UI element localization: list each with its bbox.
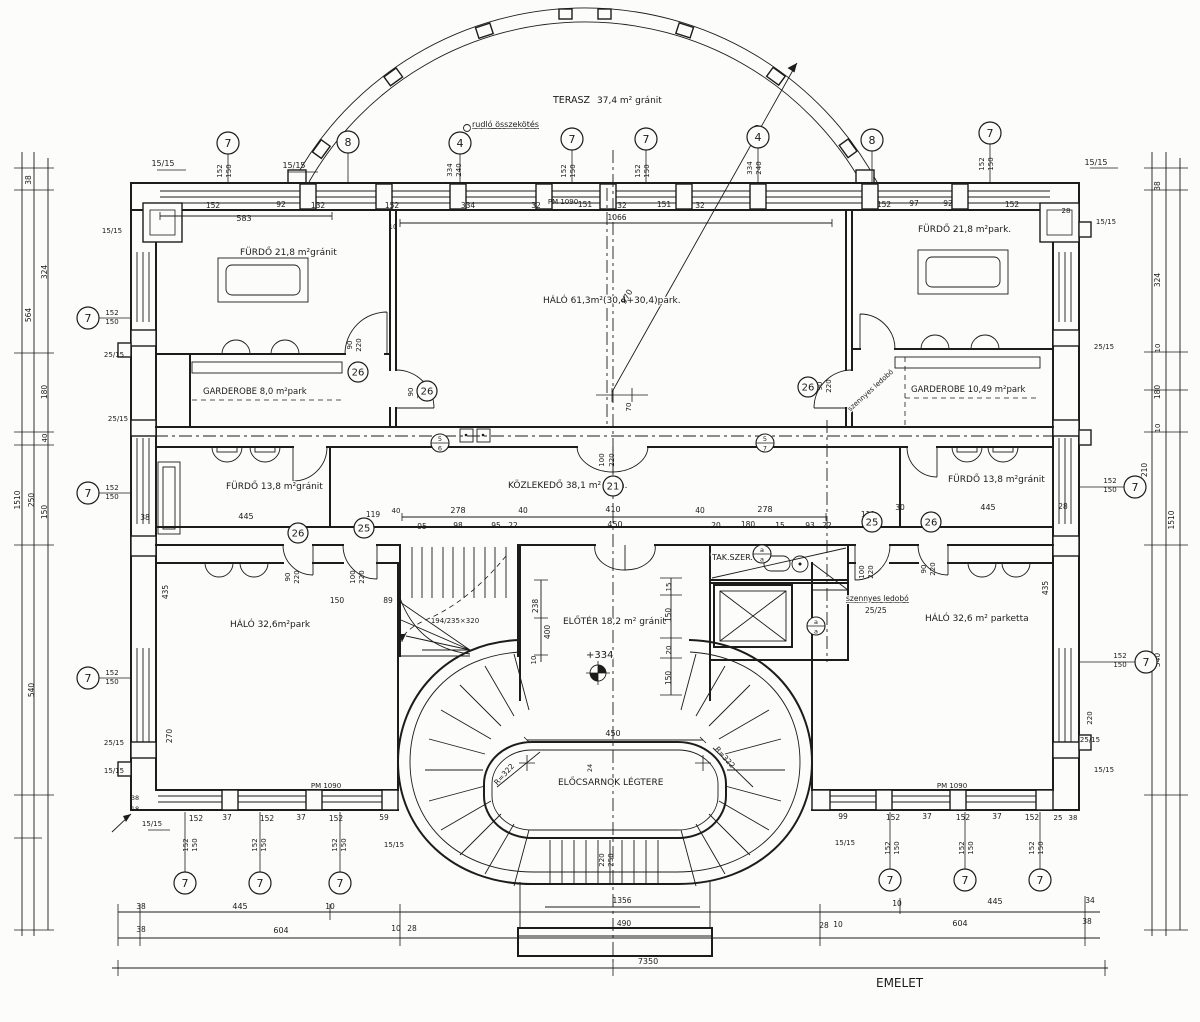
dimension-label: 40	[392, 507, 401, 515]
ref-bubble: 26	[921, 512, 941, 532]
grid-bubble-number: 7	[643, 133, 650, 146]
room-label: HÁLÓ 61,3m²(30,4+30,4)park.	[543, 294, 681, 306]
room-labels-layer: TERASZ37,4 m² gránitFÜRDŐ 21,8 m²gránitF…	[203, 95, 1045, 990]
dimension-label: 15	[665, 583, 673, 592]
dimension-label: 238	[531, 599, 540, 614]
dimension-label: 20	[711, 521, 721, 530]
dimension-label: 25/15	[108, 415, 128, 423]
dimension-label: 34	[1085, 896, 1095, 905]
dimension-label: 152	[206, 201, 221, 210]
dimension-label: 92	[276, 200, 286, 209]
dimension-label: 152	[877, 200, 892, 209]
dimension-label: 220	[293, 570, 301, 583]
room-label: EMELET	[876, 976, 924, 990]
dimension-label: 90	[346, 341, 354, 350]
dimension-label: 604	[273, 926, 288, 935]
room-label: rudló összekötés	[472, 119, 539, 129]
dimension-label: 38	[140, 513, 150, 522]
split-bubble: aa	[807, 617, 825, 636]
dimension-label: 38	[1069, 814, 1078, 822]
dimension-label: 220	[358, 570, 366, 583]
dimension-label: 400	[543, 625, 552, 640]
room-label: TAK.SZER.	[711, 553, 753, 562]
dimension-label: 37	[922, 812, 932, 821]
grid-bubble-number: 7	[887, 874, 894, 887]
grid-bubble-number: 7	[225, 137, 232, 150]
ref-bubble: 26	[348, 362, 368, 382]
railing-post	[559, 9, 572, 19]
dimension-label: 150	[191, 838, 199, 851]
dimension-label: 24	[586, 764, 594, 772]
split-bubble: 56	[431, 434, 449, 453]
dimension-label: 445	[232, 902, 247, 911]
grid-bubble: 7	[77, 307, 131, 329]
fixture-arcs	[968, 563, 1030, 577]
dimension-label: 152	[1025, 813, 1040, 822]
grid-bubble-number: 7	[337, 877, 344, 890]
ref-bubble-number: 25	[358, 524, 371, 535]
dimension-label: 25/15	[104, 351, 124, 359]
room-label: szennyes ledobó	[846, 594, 909, 603]
dimension-label: 95	[417, 522, 427, 531]
dimension-label: 28	[407, 924, 417, 933]
dimension-label: 15/15	[835, 839, 855, 847]
dimension-label: 97	[909, 199, 919, 208]
dimension-label: 10	[1154, 424, 1162, 433]
dimension-label: 270	[165, 729, 174, 744]
note-marker	[464, 125, 471, 132]
dimension-label: 152	[105, 309, 118, 317]
dimension-label: 150	[330, 596, 345, 605]
grid-bubble-number: 8	[869, 134, 876, 147]
dimension-label: 151	[578, 200, 593, 209]
grid-bubble-number: 7	[85, 487, 92, 500]
dimension-label: 152	[182, 838, 190, 851]
floor-plan-drawing: EMELET	[0, 0, 1200, 1022]
dimension-label: 15/15	[151, 159, 174, 168]
dimension-label: 150	[105, 318, 118, 326]
dimension-label: 410	[605, 505, 620, 514]
dimension-label: 180	[741, 520, 756, 529]
dimension-label: 150	[260, 838, 268, 851]
dimension-label: 220	[355, 338, 363, 351]
upper-stair	[399, 547, 518, 656]
dimension-label: 37	[992, 812, 1002, 821]
dimension-label: 32	[695, 201, 705, 210]
wardrobe	[895, 357, 1040, 368]
dimension-label: 38	[1153, 181, 1162, 191]
dimension-label: 18	[131, 805, 139, 813]
grid-bubble-number: 7	[257, 877, 264, 890]
dimension-label: 1510	[1167, 510, 1176, 529]
dimension-label: 152	[105, 484, 118, 492]
dimension-label: 92	[943, 199, 953, 208]
diagonal-970	[612, 63, 797, 392]
dimension-label: 25/15	[1094, 343, 1114, 351]
dimension-label: 450	[607, 520, 622, 529]
fixture-arcs	[205, 563, 268, 577]
dimension-label: 15/15	[1084, 158, 1107, 167]
room-label: +334	[586, 650, 613, 661]
dimension-label: 90	[920, 565, 928, 574]
dimension-label: 22	[822, 521, 832, 530]
dimension-label: 32	[531, 201, 541, 210]
dimension-label: 250	[27, 493, 36, 508]
dimension-label: 152	[956, 813, 971, 822]
grid-bubble: 7	[249, 812, 271, 894]
dimension-label: PM 1090	[937, 782, 967, 790]
dimension-label: 150	[664, 608, 673, 623]
dimension-label: 604	[952, 919, 967, 928]
dimension-label: 278	[450, 506, 465, 515]
dimension-label: 100	[858, 565, 866, 578]
laundry-chute	[812, 563, 848, 590]
dimension-label: 32	[617, 201, 627, 210]
ref-bubble-number: 26	[352, 368, 365, 379]
room-label: FÜRDŐ 21,8 m²gránit	[240, 247, 337, 258]
dimension-label: 15/15	[104, 767, 124, 775]
railing-post	[839, 139, 857, 158]
dimension-label: 10	[1154, 344, 1162, 353]
railing-post	[312, 140, 330, 159]
dimension-label: 220	[929, 562, 937, 575]
room-label: GARDEROBE 8,0 m²park	[203, 387, 307, 397]
dimension-label: 38	[1082, 917, 1092, 926]
grid-bubble: 7	[77, 667, 131, 689]
corner-column	[143, 203, 182, 242]
room-label: FÜRDŐ 13,8 m²gránit	[948, 474, 1045, 485]
dimension-label: 152	[884, 841, 892, 854]
dimension-label: 152	[105, 669, 118, 677]
arch-foot	[856, 170, 874, 183]
dimension-label: 10	[325, 902, 335, 911]
grid-bubble-number: 4	[457, 137, 464, 150]
dimension-label: 25/15	[104, 739, 124, 747]
dimension-label: 240	[455, 163, 463, 176]
dimension-label: 40	[41, 434, 49, 443]
split-bubble-bottom: a	[814, 628, 818, 636]
split-bubble-top: a	[814, 618, 818, 626]
room-label: ELŐCSARNOK LÉGTERE	[558, 776, 664, 788]
dimension-label: 152	[329, 814, 344, 823]
dimension-label: 220	[825, 379, 833, 392]
dimension-label: 152	[1103, 477, 1116, 485]
dimension-label: 150	[1037, 841, 1045, 854]
dimension-label: 152	[216, 164, 224, 177]
wall-piers	[118, 184, 1091, 810]
elevator-x	[720, 591, 786, 641]
ref-bubble-number: 26	[421, 387, 434, 398]
split-bubble-bottom: 6	[438, 445, 442, 453]
dimension-label: 100	[349, 570, 357, 583]
dimension-label: 90	[284, 573, 292, 582]
ref-bubble-number: 26	[292, 529, 305, 540]
dimension-label: 10	[892, 899, 902, 908]
floor-plan-sheet: EMELET	[0, 0, 1200, 1022]
washbasins	[212, 447, 280, 462]
ref-bubble: 26	[798, 377, 818, 397]
room-label: 37,4 m² gránit	[597, 96, 662, 106]
dimension-label: 20	[665, 646, 673, 655]
dimension-label: 150	[664, 671, 673, 686]
dimension-label: 37	[222, 813, 232, 822]
dimension-label: 220	[867, 565, 875, 578]
railing-post	[384, 68, 403, 86]
ref-bubble: 26	[288, 523, 308, 543]
dimension-label: 250	[607, 853, 615, 866]
dimension-label: 540	[27, 683, 36, 698]
grid-bubble: 7	[329, 812, 351, 894]
dimension-label: 10	[389, 223, 398, 231]
dimension-label: 152	[978, 157, 986, 170]
dimension-label: 445	[238, 512, 253, 521]
dimension-label: 152	[251, 838, 259, 851]
split-bubble-top: 5	[438, 435, 442, 443]
dimension-label: 220	[1086, 711, 1094, 724]
railing-post	[598, 9, 611, 19]
bathtub-inner	[226, 265, 300, 295]
dimension-label: 152	[1113, 652, 1126, 660]
dimension-label: 37	[296, 813, 306, 822]
dimension-label: 324	[1153, 273, 1162, 288]
washbasins	[952, 447, 1018, 462]
dimension-label: 15/15	[384, 841, 404, 849]
dimension-label: 150	[105, 678, 118, 686]
dimension-label: 334	[446, 163, 454, 177]
dimension-label: 38	[136, 902, 146, 911]
dimension-label: 152	[634, 164, 642, 177]
room-label: TERASZ	[552, 95, 591, 106]
grid-bubble: 8	[337, 131, 359, 183]
exterior-walls	[131, 183, 1079, 810]
ref-bubble-number: 25	[866, 518, 879, 529]
dimension-label: 150	[987, 157, 995, 170]
ref-bubble: 21	[603, 476, 623, 496]
grid-bubble-number: 7	[569, 133, 576, 146]
windows	[137, 191, 1071, 802]
dimension-label: 152	[331, 838, 339, 851]
setout-crosses	[519, 755, 711, 771]
dimension-label: 1066	[607, 213, 626, 222]
dimension-label: 152	[886, 813, 901, 822]
dimension-label: 22	[508, 521, 518, 530]
dimension-label: 445	[987, 897, 1002, 906]
dimension-label: 40	[695, 506, 705, 515]
dimension-label: 194/235×320	[431, 617, 479, 625]
dimension-label: 30	[895, 503, 905, 512]
dimension-label: 38	[136, 925, 146, 934]
dimension-label: 278	[757, 505, 772, 514]
room-label: FÜRDŐ 13,8 m²gránit	[226, 481, 323, 492]
dimension-label: 150	[40, 505, 49, 520]
room-label: GARDEROBE 10,49 m²park	[911, 385, 1026, 395]
room-label: HÁLÓ 32,6m²park	[230, 618, 311, 630]
dimension-label: 334	[461, 201, 476, 210]
dimension-label: 152	[260, 814, 275, 823]
dimension-label: 180	[40, 385, 49, 400]
grid-bubble-number: 7	[1132, 481, 1139, 494]
grid-bubble-number: 7	[1037, 874, 1044, 887]
grid-bubble: 7	[174, 812, 196, 894]
dimension-label: 450	[605, 729, 620, 738]
grid-bubble-number: 7	[962, 874, 969, 887]
washbasins	[222, 340, 299, 354]
grid-bubble-number: 7	[182, 877, 189, 890]
dimension-label: 38	[131, 794, 139, 802]
dimension-label: 38	[24, 175, 33, 185]
dimension-label: 152	[385, 201, 400, 210]
dimension-label: 240	[755, 161, 763, 174]
dimension-label: 435	[161, 585, 170, 600]
dimension-label: 15/15	[282, 161, 305, 170]
ref-bubble-number: 21	[607, 482, 620, 493]
dimension-label: 90	[407, 388, 415, 397]
ref-bubble-number: 26	[802, 383, 815, 394]
split-bubble: aa	[753, 545, 771, 564]
dimension-label: 15/15	[142, 820, 162, 828]
dimension-label: 98	[453, 521, 463, 530]
dimension-label: 132	[311, 201, 326, 210]
room-label: 25/25	[865, 606, 887, 615]
dimension-label: 490	[617, 919, 632, 928]
dimension-label: 15	[775, 521, 785, 530]
grid-bubble-number: 7	[85, 672, 92, 685]
dimension-label: 10	[833, 920, 843, 929]
grid-bubble: 7	[979, 122, 1001, 183]
grid-bubble-number: 4	[755, 131, 762, 144]
corner-column	[1040, 203, 1079, 242]
split-bubble-top: a	[760, 546, 764, 554]
ref-bubble-number: 26	[925, 518, 938, 529]
room-label: ELŐTÉR 18,2 m² gránit	[563, 615, 666, 627]
grid-bubble-number: 7	[987, 127, 994, 140]
shower	[158, 462, 180, 534]
dimension-label: 10	[530, 656, 538, 665]
wardrobe	[192, 362, 342, 373]
dimension-label: 89	[383, 596, 393, 605]
dimension-label: 324	[40, 265, 49, 280]
dimension-label: 59	[379, 813, 389, 822]
dimension-label: 150	[225, 164, 233, 177]
stair-well	[484, 742, 726, 838]
dimension-label: 435	[1041, 581, 1050, 596]
dimension-label: 564	[24, 308, 33, 323]
dimension-label: 15/15	[102, 227, 122, 235]
grid-bubble-number: 8	[345, 136, 352, 149]
dimension-label: 150	[105, 493, 118, 501]
dimension-label: 152	[1028, 841, 1036, 854]
split-bubble-top: 5	[763, 435, 767, 443]
dimension-label: 151	[657, 200, 672, 209]
level-marker	[586, 661, 610, 685]
dimension-label: 1510	[13, 490, 22, 509]
dimension-label: 152	[560, 164, 568, 177]
dimension-label: 150	[643, 164, 651, 177]
dimension-label: 1356	[612, 896, 631, 905]
dimension-label: 99	[838, 812, 848, 821]
dimension-label: 93	[805, 521, 815, 530]
room-label: FÜRDŐ 21,8 m²park.	[918, 224, 1011, 235]
dimension-label: PM 1090	[311, 782, 341, 790]
railing-post	[767, 67, 786, 85]
dimension-labels-layer: 15/1515/1515/151521503342401521501521503…	[13, 157, 1176, 966]
ref-bubble: 26	[417, 381, 437, 401]
dimension-label: 15/15	[1096, 218, 1116, 226]
dimension-label: 119	[366, 510, 381, 519]
dimension-label: 220	[608, 453, 616, 466]
grid-bubble: 7	[77, 482, 131, 504]
dimension-label: 150	[893, 841, 901, 854]
grid-bubble-number: 7	[85, 312, 92, 325]
dimension-label: 150	[340, 838, 348, 851]
dimension-label: 25/15	[1080, 736, 1100, 744]
washbasins	[921, 335, 999, 349]
dimension-label: 334	[746, 161, 754, 175]
dimension-label: 152	[189, 814, 204, 823]
ref-bubble: 25	[354, 518, 374, 538]
dimension-label: 7350	[638, 957, 658, 966]
dimension-label: 25	[1054, 814, 1063, 822]
room-label: szennyes ledobó	[846, 368, 895, 413]
dimension-label: 15/15	[1094, 766, 1114, 774]
dimension-label: 28	[1062, 207, 1071, 215]
dimension-label: 445	[980, 503, 995, 512]
dimension-label: 180	[1153, 385, 1162, 400]
dimension-label: 220	[598, 853, 606, 866]
grid-bubble-number: 7	[1143, 656, 1150, 669]
dimension-label: 95	[491, 521, 501, 530]
dimension-label: 70	[625, 403, 633, 412]
dimension-label: 152	[1005, 200, 1020, 209]
dimension-label: 150	[967, 841, 975, 854]
split-bubble-bottom: 7	[763, 445, 767, 453]
dimension-label: 40	[518, 506, 528, 515]
dimension-label: 10	[391, 924, 401, 933]
dimension-label: 150	[569, 164, 577, 177]
ref-bubble: 25	[862, 512, 882, 532]
dimension-label: 28	[819, 921, 829, 930]
bathtub-inner	[926, 257, 1000, 287]
dimension-label: 583	[236, 214, 251, 223]
room-label: HÁLÓ 32,6 m² parketta	[925, 612, 1029, 624]
dimension-label: PM 1090	[548, 198, 578, 206]
dimension-label: 28	[1058, 502, 1068, 511]
dimension-label: 100	[598, 453, 606, 466]
entrance-bay	[518, 882, 712, 956]
dimension-label: 210	[1140, 463, 1149, 478]
split-bubble: 57	[756, 434, 774, 453]
split-bubble-bottom: a	[760, 556, 764, 564]
stair-treads-right	[681, 654, 785, 886]
